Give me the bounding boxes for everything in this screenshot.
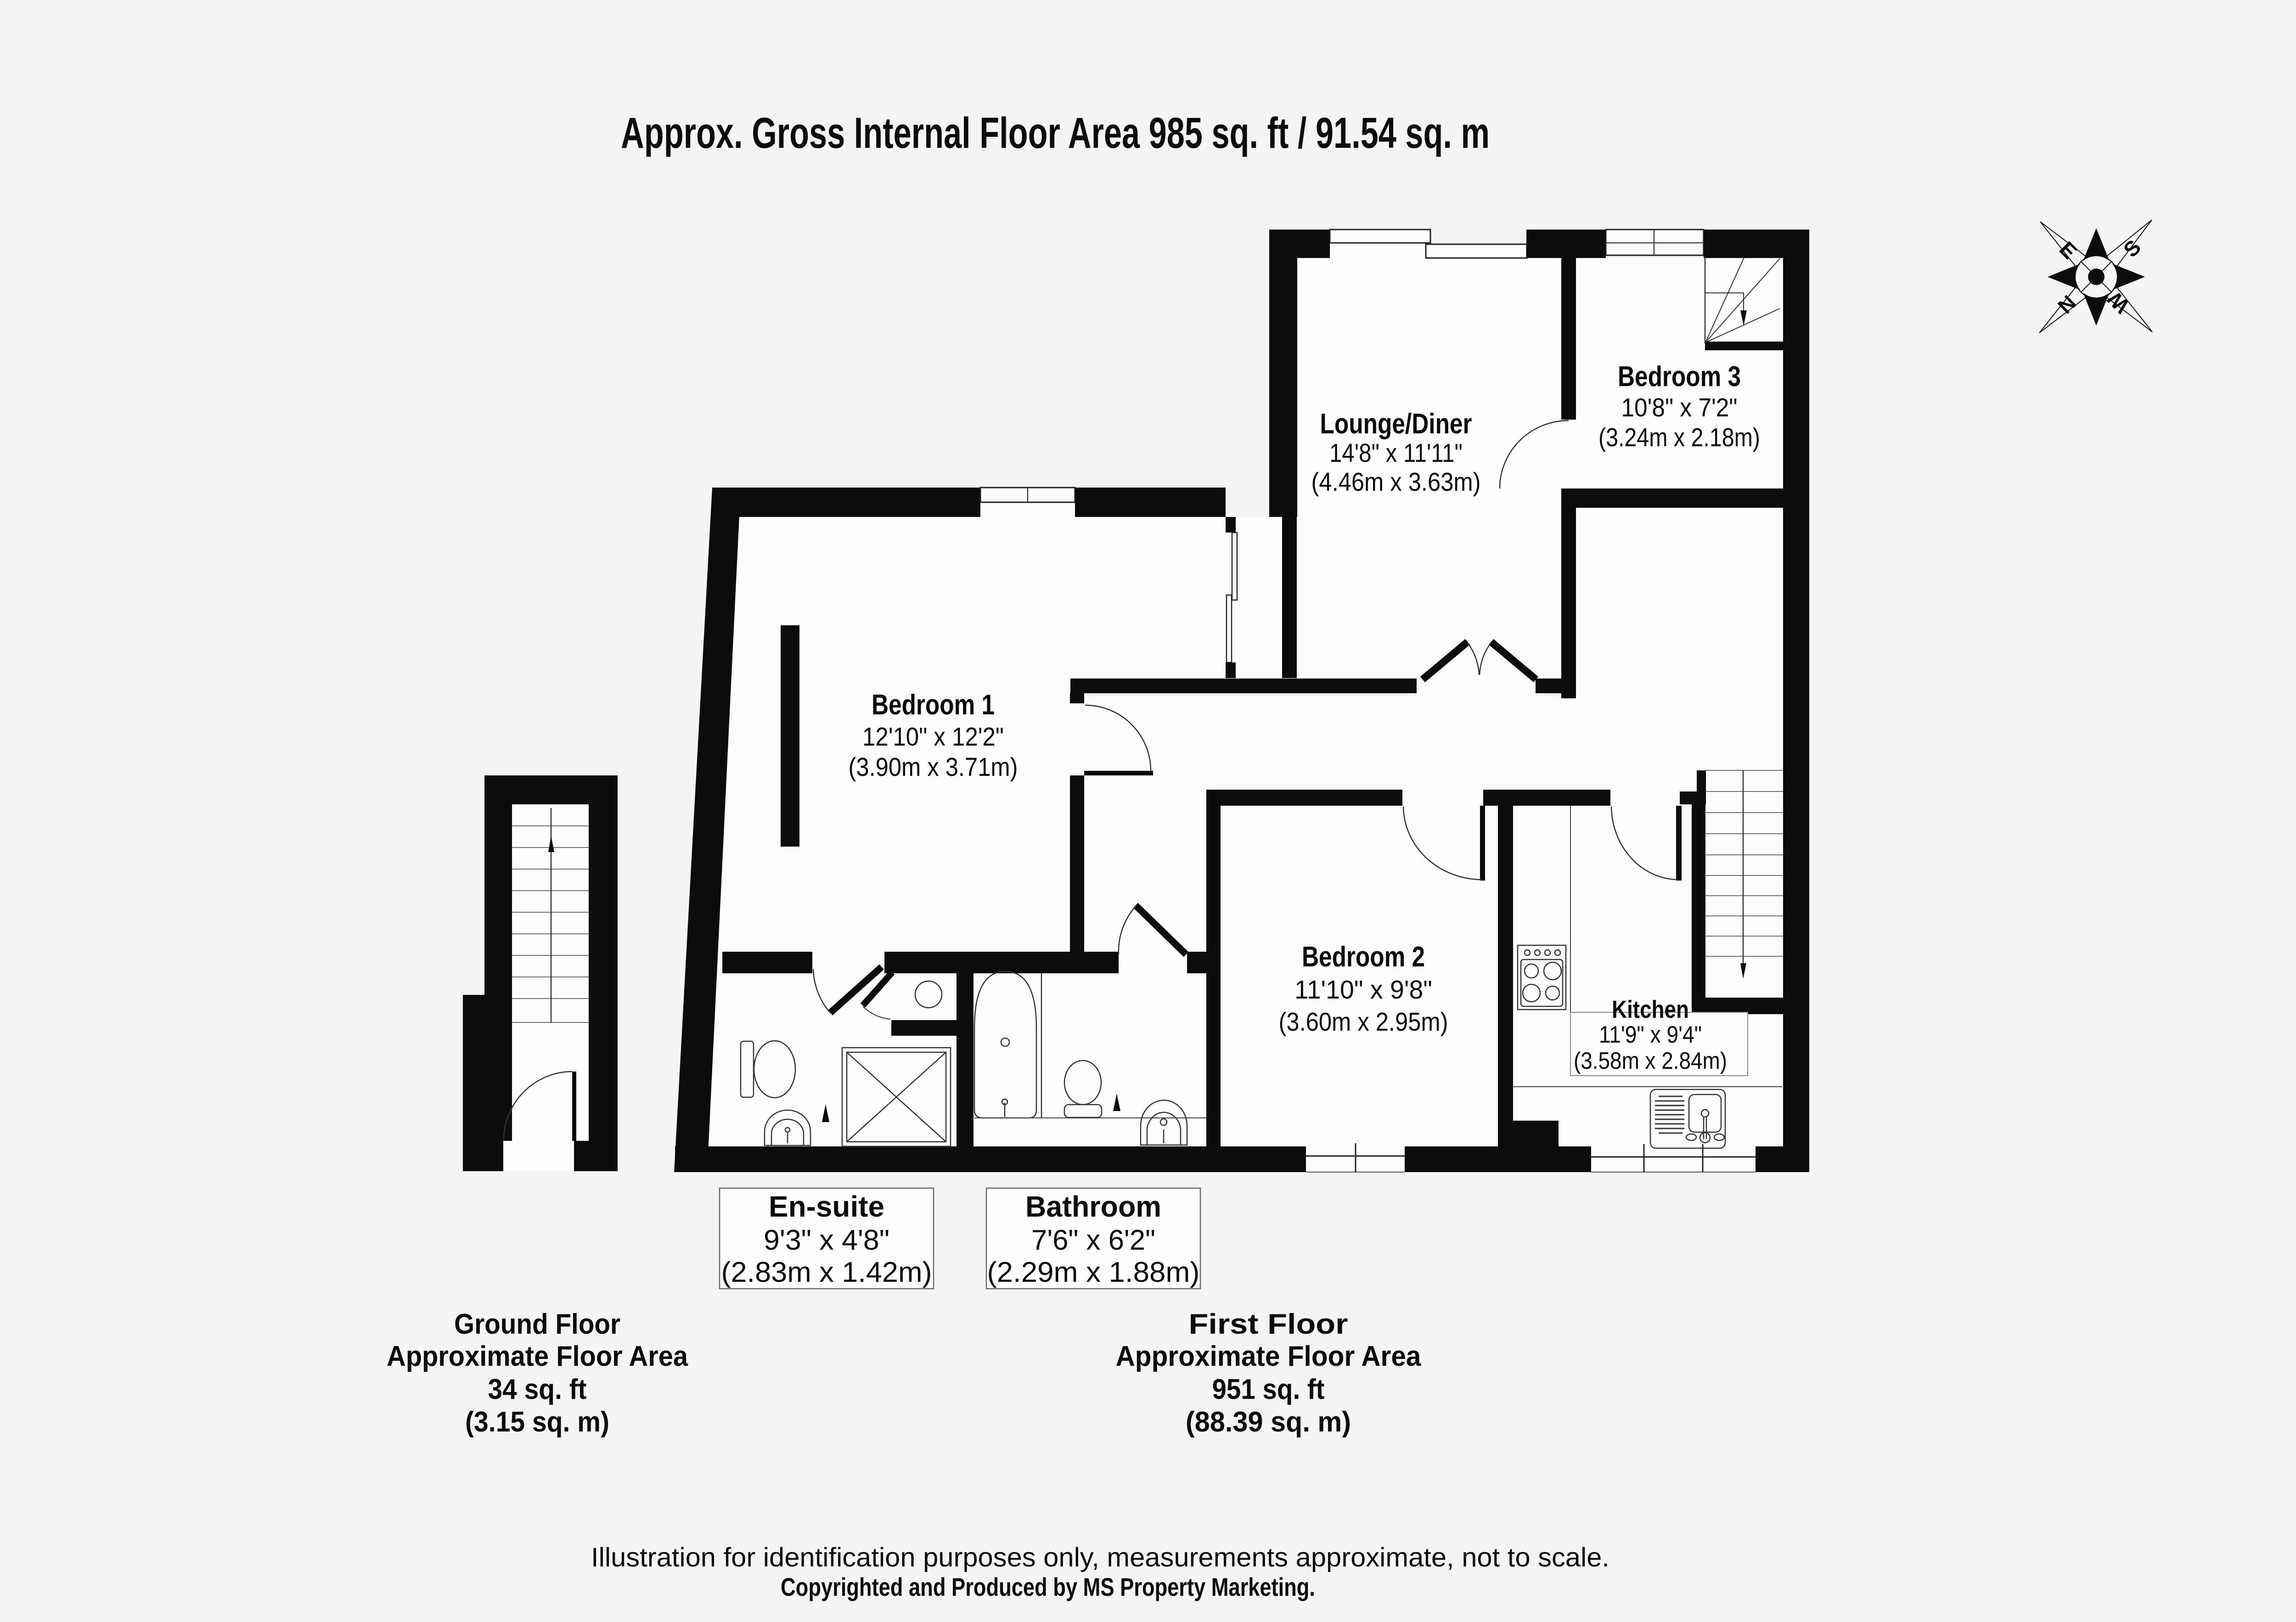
svg-text:10'8" x 7'2": 10'8" x 7'2" — [1621, 393, 1738, 422]
svg-text:(4.46m x 3.63m): (4.46m x 3.63m) — [1311, 467, 1481, 497]
svg-text:Bedroom 3: Bedroom 3 — [1618, 361, 1741, 393]
svg-text:7'6" x 6'2": 7'6" x 6'2" — [1031, 1224, 1155, 1256]
svg-text:Bedroom 1: Bedroom 1 — [872, 689, 995, 721]
svg-text:(3.90m x 3.71m): (3.90m x 3.71m) — [849, 752, 1018, 782]
svg-text:11'10" x 9'8": 11'10" x 9'8" — [1294, 975, 1432, 1005]
svg-text:Approx. Gross Internal Floor A: Approx. Gross Internal Floor Area 985 sq… — [621, 109, 1490, 157]
svg-text:Approximate Floor Area: Approximate Floor Area — [387, 1341, 688, 1372]
svg-text:(2.29m x 1.88m): (2.29m x 1.88m) — [987, 1257, 1200, 1288]
svg-text:Copyrighted and Produced by M: Copyrighted and Produced by MS Property … — [781, 1572, 1315, 1601]
svg-text:Approximate Floor Area: Approximate Floor Area — [1116, 1341, 1421, 1372]
svg-text:12'10" x 12'2": 12'10" x 12'2" — [862, 722, 1004, 752]
svg-text:951 sq. ft: 951 sq. ft — [1212, 1374, 1325, 1405]
svg-text:Ground Floor: Ground Floor — [454, 1308, 620, 1340]
svg-text:(88.39 sq. m): (88.39 sq. m) — [1186, 1406, 1351, 1438]
svg-text:34 sq. ft: 34 sq. ft — [488, 1374, 587, 1405]
svg-text:En-suite: En-suite — [769, 1190, 884, 1223]
svg-text:(3.15 sq. m): (3.15 sq. m) — [465, 1406, 609, 1438]
svg-text:First Floor: First Floor — [1189, 1308, 1348, 1340]
svg-text:(3.58m x 2.84m): (3.58m x 2.84m) — [1574, 1048, 1727, 1074]
svg-text:(3.24m x 2.18m): (3.24m x 2.18m) — [1598, 423, 1760, 452]
svg-text:9'3" x 4'8": 9'3" x 4'8" — [764, 1224, 889, 1256]
svg-text:14'8" x 11'11": 14'8" x 11'11" — [1329, 438, 1463, 468]
svg-text:(3.60m x 2.95m): (3.60m x 2.95m) — [1279, 1007, 1448, 1037]
svg-text:Bathroom: Bathroom — [1025, 1190, 1161, 1223]
svg-text:11'9" x 9'4": 11'9" x 9'4" — [1599, 1021, 1702, 1048]
svg-text:Bedroom 2: Bedroom 2 — [1302, 941, 1425, 973]
svg-text:Illustration for identificatio: Illustration for identification purposes… — [591, 1543, 1609, 1572]
svg-text:Kitchen: Kitchen — [1612, 996, 1689, 1023]
svg-text:(2.83m x 1.42m): (2.83m x 1.42m) — [721, 1257, 932, 1288]
svg-text:Lounge/Diner: Lounge/Diner — [1320, 408, 1472, 440]
